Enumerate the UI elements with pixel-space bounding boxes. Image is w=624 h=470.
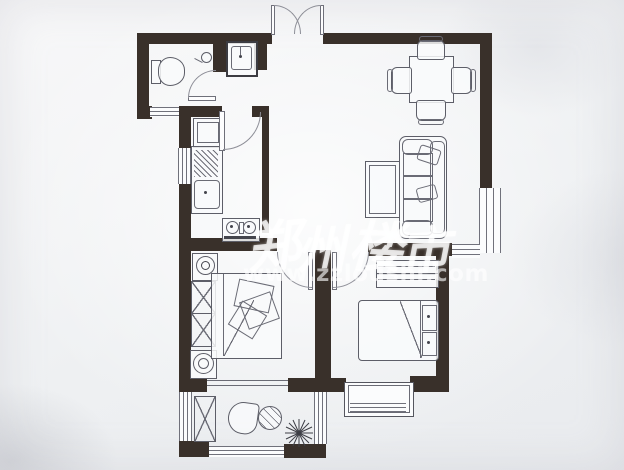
stove-control: [239, 222, 244, 234]
dining-chair-bottom: [416, 100, 446, 121]
wall-bathroom-left: [137, 33, 149, 108]
wardrobe-line-2: [378, 279, 435, 280]
balcony-door-track: [207, 380, 288, 386]
balcony-table: [258, 406, 282, 430]
bed2-pillow-2: [422, 332, 437, 356]
balcony-chair: [226, 400, 260, 436]
balcony-cabinet: [194, 396, 216, 442]
kitchen-sink: [194, 180, 220, 209]
kitchen-window: [178, 148, 191, 184]
dining-table: [409, 56, 454, 103]
wall-kitchen-right: [262, 106, 269, 233]
dining-chair-top: [417, 40, 445, 60]
bed2-pillow-1: [422, 305, 437, 331]
wall-living-right: [480, 33, 492, 190]
bed2-pillow-2-dot: [427, 341, 430, 344]
wall-bedroom1-bottom-left: [179, 378, 207, 392]
plant-icon: [283, 417, 315, 449]
wash-basin-inner: [231, 46, 252, 70]
wall-top-right: [323, 33, 492, 44]
bathroom-door-arc: [188, 70, 216, 98]
balcony-window-right: [314, 392, 327, 444]
bay-window-lines: [350, 403, 406, 412]
wall-kitchen-top: [179, 106, 222, 117]
watermark: 郑 州 楼 市 www.zzloushi.com: [0, 0, 624, 470]
fridge-inner: [197, 122, 219, 143]
floorplan-photo: 郑 州 楼 市 www.zzloushi.com: [0, 0, 624, 470]
dining-chair-left-back: [387, 69, 393, 92]
balcony-window-left: [179, 392, 192, 441]
drainboard: [194, 150, 218, 177]
toilet-bowl: [158, 57, 185, 86]
wash-basin-tap-line: [240, 46, 241, 55]
sofa-armrest-bottom: [402, 220, 433, 236]
kitchen-door-arc: [223, 112, 261, 150]
living-window-sill-corner: [452, 244, 480, 258]
kitchen-sink-drain: [204, 191, 207, 194]
stove-burner-right-dot: [247, 225, 250, 228]
dining-chair-left: [391, 67, 412, 94]
balcony-table-stripes: [259, 407, 281, 429]
wardrobe-rail-2: [376, 273, 439, 288]
living-room-window: [479, 188, 501, 253]
wall-between-bedrooms: [315, 250, 331, 392]
coffee-table-inner: [369, 165, 396, 214]
stove-burner-left-dot: [230, 225, 233, 228]
dining-chair-top-back: [419, 36, 443, 42]
stool-ring-inner: [198, 358, 209, 369]
wall-bathroom-right-stub: [213, 33, 226, 72]
bedroom2-door-arc: [333, 252, 369, 288]
dining-chair-right-back: [470, 69, 476, 92]
dining-chair-bottom-back: [418, 119, 444, 125]
wardrobe-line-1: [378, 266, 435, 267]
washing-machine-swirl: [201, 261, 210, 270]
entry-door-arc-right: [294, 5, 321, 34]
wall-bedroom2-bottom-right: [410, 376, 449, 392]
bed2-fold-line: [400, 301, 422, 358]
wall-bedroom1-bottom-right: [288, 378, 331, 392]
bed2-pillow-1-dot: [427, 315, 430, 318]
balcony-post-bottom-left: [179, 441, 209, 457]
bed1-fold-line: [224, 300, 254, 356]
stove-base: [224, 236, 256, 239]
wash-basin-faucet: [239, 55, 242, 58]
balcony-window-bottom: [209, 446, 284, 457]
bedroom1-door-arc: [277, 252, 312, 288]
dining-chair-right: [451, 67, 472, 94]
